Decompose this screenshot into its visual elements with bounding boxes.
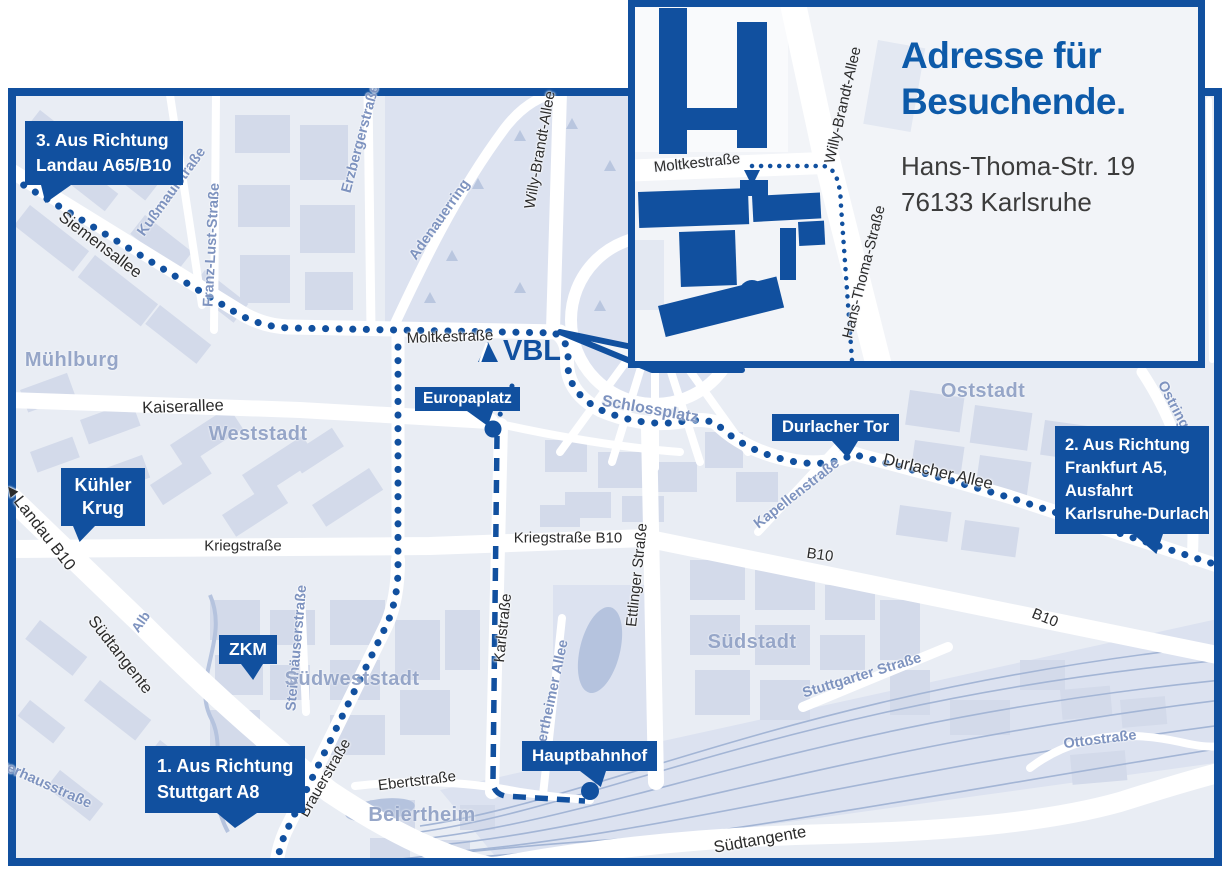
city-map-page: Siemensallee Moltkestraße Kaiserallee Kr… xyxy=(0,0,1230,874)
street-label: Kriegstraße xyxy=(204,539,282,554)
vbl-triangle-icon xyxy=(477,340,501,364)
callout-from-stuttgart: 1. Aus RichtungStuttgart A8 xyxy=(145,746,305,813)
inset-address: Hans-Thoma-Str. 1976133 Karlsruhe xyxy=(901,148,1191,220)
street-label: Stuttgarter Straße xyxy=(801,651,923,701)
callout-pointer xyxy=(1133,534,1163,554)
street-label: Siemensallee xyxy=(55,209,144,282)
callout-pointer xyxy=(73,526,95,542)
callout-durlacher-tor: Durlacher Tor xyxy=(772,414,899,441)
street-label: Pulverhausstraße xyxy=(8,749,94,812)
callout-pointer xyxy=(580,771,606,787)
street-label: Kriegstraße B10 xyxy=(514,531,622,546)
street-label: Kapellenstraße xyxy=(752,456,843,531)
street-label: Franz-Lust-Straße xyxy=(202,183,223,308)
street-label: Adenauerring xyxy=(407,177,473,263)
street-label: Willy-Brandt-Allee xyxy=(522,90,557,210)
district-label: Südweststadt xyxy=(285,669,420,689)
callout-pointer xyxy=(467,411,493,426)
street-label: Kaiserallee xyxy=(142,397,224,416)
district-label: Südstadt xyxy=(708,632,797,652)
district-label: Oststadt xyxy=(941,381,1025,401)
district-label: Beiertheim xyxy=(368,805,475,825)
street-label: Alb xyxy=(129,609,153,635)
callout-zkm: ZKM xyxy=(219,635,277,664)
street-label: Südtangente xyxy=(712,824,807,857)
street-label: B10 xyxy=(806,546,835,565)
visitor-address-block: Adresse fürBesuchende. Hans-Thoma-Str. 1… xyxy=(901,33,1191,220)
callout-pointer xyxy=(832,441,858,458)
district-label: Mühlburg xyxy=(25,350,119,370)
callout-from-frankfurt: 2. Aus RichtungFrankfurt A5, AusfahrtKar… xyxy=(1055,426,1209,534)
inset-title: Adresse fürBesuchende. xyxy=(901,33,1191,125)
callout-pointer xyxy=(241,664,263,680)
street-label: B10 xyxy=(1030,606,1060,630)
visitor-address-inset: Moltkestraße Willy-Brandt-Allee Hans-Tho… xyxy=(628,0,1205,368)
street-label: Erzbergerstraße xyxy=(340,88,383,195)
street-label: Steinhäuserstraße xyxy=(284,584,309,711)
street-label: Ostring xyxy=(1154,379,1191,431)
callout-hauptbahnhof: Hauptbahnhof xyxy=(522,741,657,771)
street-label: Durlacher Allee xyxy=(882,451,995,492)
district-label: Weststadt xyxy=(209,424,308,444)
street-label: Ottostraße xyxy=(1063,728,1138,751)
callout-pointer xyxy=(217,813,257,828)
street-label: Ebertstraße xyxy=(377,769,457,793)
street-label: Schlossplatz xyxy=(600,394,699,427)
callout-pointer xyxy=(41,185,71,203)
street-label: Ettlinger Straße xyxy=(624,522,650,627)
street-label: Karlstraße xyxy=(492,593,514,663)
callout-europaplatz: Europaplatz xyxy=(415,387,520,411)
callout-kuehler-krug: KühlerKrug xyxy=(61,468,145,526)
callout-from-landau: 3. Aus RichtungLandau A65/B10 xyxy=(25,121,183,185)
